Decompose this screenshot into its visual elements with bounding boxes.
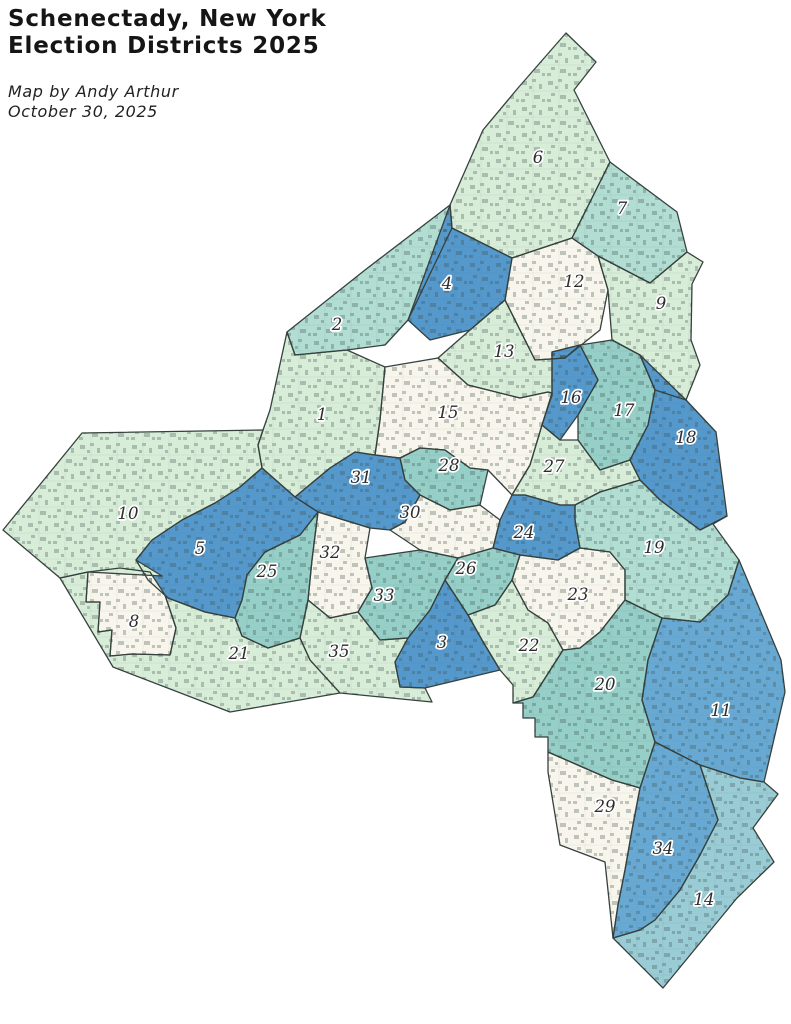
district-label-32: 32 — [320, 543, 341, 562]
district-label-1: 1 — [317, 405, 328, 424]
map-title: Schenectady, New York Election Districts… — [8, 6, 327, 60]
district-label-28: 28 — [438, 456, 460, 475]
district-label-2: 2 — [331, 315, 343, 334]
district-label-30: 30 — [400, 503, 421, 522]
district-label-24: 24 — [513, 523, 535, 542]
district-label-14: 14 — [694, 890, 715, 909]
district-label-16: 16 — [561, 388, 582, 407]
district-label-9: 9 — [656, 294, 667, 313]
district-label-19: 19 — [644, 538, 665, 557]
district-label-18: 18 — [676, 428, 697, 447]
map-header: Schenectady, New York Election Districts… — [8, 6, 327, 122]
district-label-12: 12 — [564, 272, 585, 291]
district-label-5: 5 — [195, 539, 206, 558]
district-label-7: 7 — [617, 199, 628, 218]
district-label-8: 8 — [129, 612, 140, 631]
map-page: { "title": { "text": "Schenectady, New Y… — [0, 0, 791, 1024]
district-label-26: 26 — [455, 559, 477, 578]
election-district-map: 1234567891011121314151617181920212223242… — [0, 0, 791, 1024]
district-label-27: 27 — [543, 457, 565, 476]
map-credit: Map by Andy Arthur October 30, 2025 — [8, 82, 327, 122]
district-label-3: 3 — [437, 633, 448, 652]
district-label-21: 21 — [228, 644, 250, 663]
district-label-22: 22 — [518, 636, 540, 655]
district-label-13: 13 — [494, 342, 515, 361]
district-label-11: 11 — [711, 701, 732, 720]
district-label-10: 10 — [118, 504, 139, 523]
district-label-25: 25 — [256, 562, 278, 581]
district-label-31: 31 — [351, 468, 372, 487]
district-texture-32 — [308, 512, 372, 618]
district-label-35: 35 — [329, 642, 350, 661]
district-label-33: 33 — [374, 586, 395, 605]
district-label-4: 4 — [441, 274, 453, 293]
district-label-34: 34 — [653, 839, 674, 858]
district-label-15: 15 — [438, 403, 459, 422]
district-label-6: 6 — [533, 148, 544, 167]
district-label-17: 17 — [614, 401, 635, 420]
district-label-20: 20 — [594, 675, 616, 694]
district-label-29: 29 — [594, 797, 616, 816]
district-label-23: 23 — [567, 585, 589, 604]
